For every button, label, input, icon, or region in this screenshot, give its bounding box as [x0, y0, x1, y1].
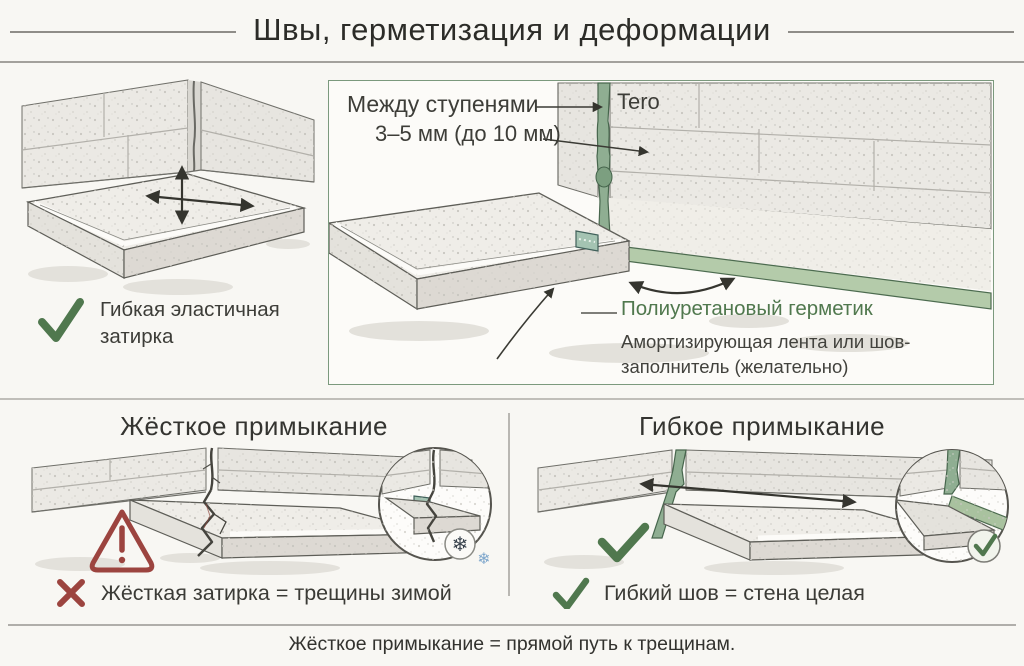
wall-left-texture	[22, 80, 188, 188]
check-icon	[552, 577, 590, 609]
rigid-verdict-text: Жёсткая затирка = трещины зимой	[101, 581, 452, 606]
joint-pointer-arrow-icon	[497, 289, 553, 359]
sealant-detail-panel: Между ступенями 3–5 мм (до 10 мм) Tero П…	[328, 80, 994, 385]
footer-divider	[8, 624, 1016, 626]
rigid-joint-illustration: ❄ ❄	[10, 444, 498, 576]
title-rule-left	[10, 31, 236, 33]
snowflake-blue-icon: ❄	[477, 551, 490, 568]
sealant-node	[596, 167, 612, 187]
sealant-label: Полиуретановый герметик	[621, 297, 873, 321]
flexible-grout-illustration	[8, 74, 318, 300]
page-title: Швы, герметизация и деформации	[0, 12, 1024, 48]
tape-label-line1: Амортизирующая лента или шов-	[621, 329, 910, 354]
infographic-page: Швы, герметизация и деформации	[0, 0, 1024, 666]
footer-note: Жёсткое примыкание = прямой путь к трещи…	[0, 633, 1024, 656]
flexible-joint-illustration	[524, 444, 1014, 576]
title-rule-right	[788, 31, 1014, 33]
snowflake-icon: ❄	[452, 534, 469, 556]
between-steps-label: Между ступенями	[347, 91, 539, 118]
expansion-arc-arrow-icon	[631, 279, 733, 293]
check-icon	[602, 527, 645, 558]
rigid-verdict-row: Жёсткая затирка = трещины зимой	[55, 577, 452, 609]
gap-size-label: 3–5 мм (до 10 мм)	[375, 121, 561, 147]
section-divider	[0, 398, 1024, 400]
rigid-panel-heading: Жёсткое примыкание	[0, 411, 508, 442]
flexible-panel-heading: Гибкое примыкание	[508, 411, 1016, 442]
flexible-grout-caption: Гибкая эластичная затирка	[100, 297, 315, 350]
tape-label-line2: заполнитель (желательно)	[621, 354, 910, 379]
check-icon	[36, 296, 86, 342]
cross-icon	[55, 577, 87, 609]
flexible-verdict-row: Гибкий шов = стена целая	[552, 577, 865, 609]
tape-label: Амортизирующая лента или шов- заполнител…	[621, 329, 910, 379]
wall-crack	[211, 448, 212, 490]
flexible-verdict-text: Гибкий шов = стена целая	[604, 581, 865, 606]
header-divider	[0, 61, 1024, 63]
tero-label: Tero	[617, 89, 660, 115]
